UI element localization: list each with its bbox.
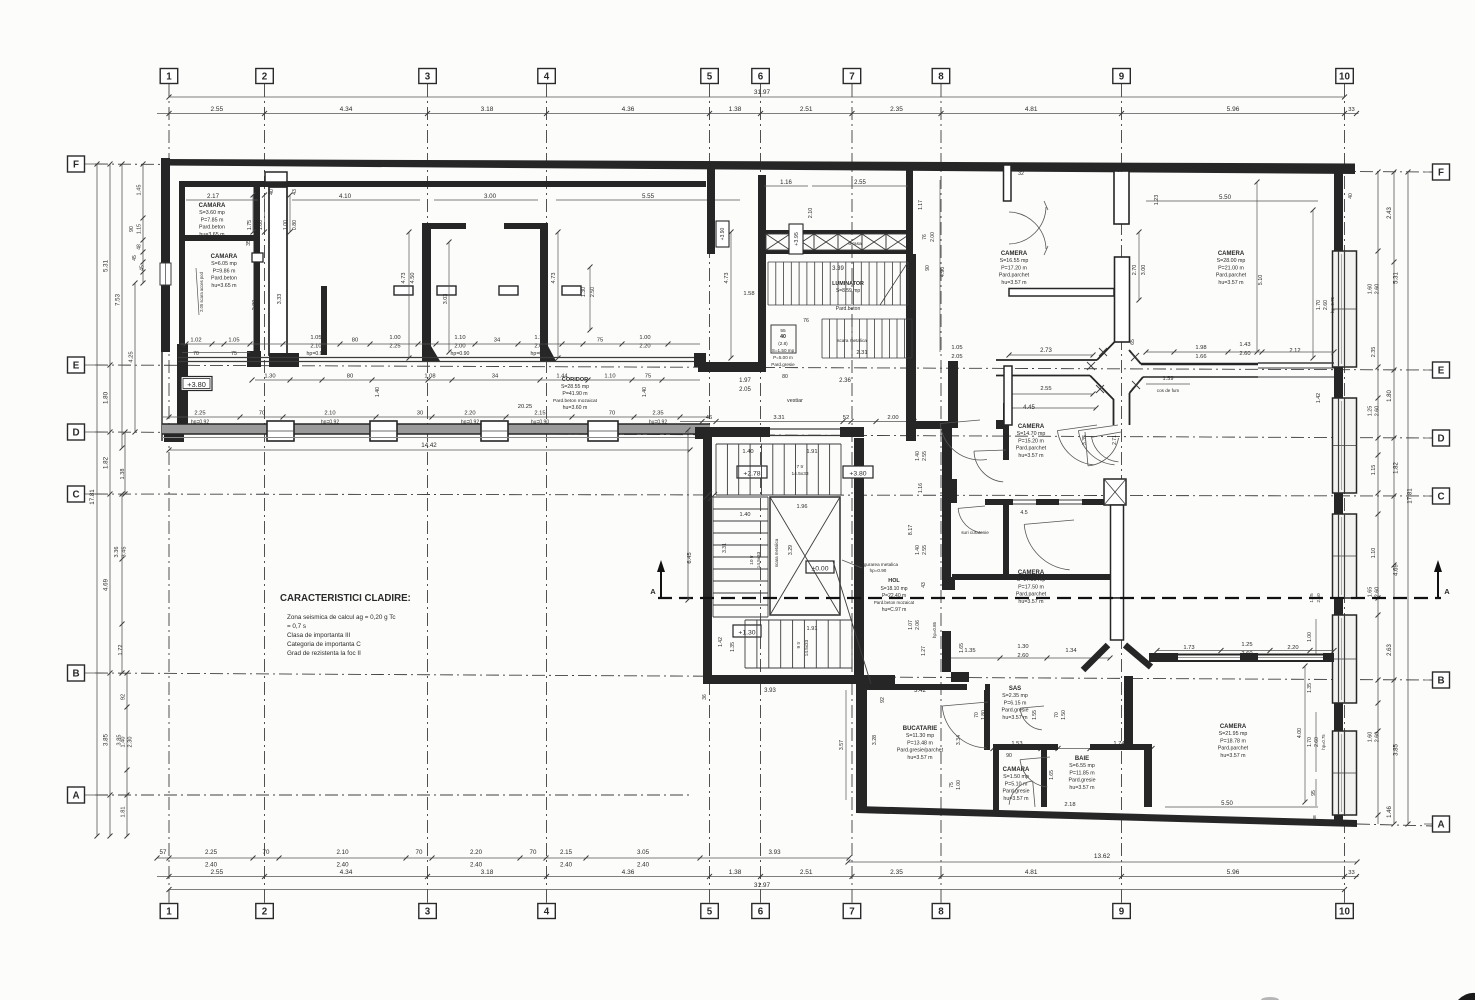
svg-text:70: 70 [609, 411, 615, 417]
svg-text:2.25: 2.25 [205, 849, 218, 856]
svg-text:S=11.30 mp: S=11.30 mp [906, 733, 934, 739]
svg-text:4.34: 4.34 [340, 106, 353, 113]
svg-text:4: 4 [544, 906, 550, 917]
svg-text:1.96: 1.96 [797, 504, 808, 510]
svg-text:A: A [650, 587, 656, 596]
svg-text:2.36: 2.36 [839, 378, 851, 384]
svg-text:70: 70 [974, 712, 980, 718]
svg-text:30: 30 [417, 411, 423, 417]
svg-text:CAMERA: CAMERA [1001, 251, 1028, 257]
svg-text:4.34: 4.34 [340, 869, 353, 876]
svg-text:1.35: 1.35 [730, 642, 736, 652]
svg-text:1.10: 1.10 [604, 374, 615, 380]
svg-text:1.91: 1.91 [807, 626, 818, 632]
svg-text:17.81: 17.81 [1407, 488, 1414, 504]
svg-text:4.36: 4.36 [622, 106, 635, 113]
svg-text:36: 36 [1117, 168, 1123, 174]
svg-text:2.40: 2.40 [336, 862, 349, 869]
svg-text:4.81: 4.81 [1025, 869, 1038, 876]
svg-text:10: 10 [1339, 71, 1350, 82]
svg-text:Pard.beton: Pard.beton [836, 306, 861, 312]
svg-text:hu=3.57 m: hu=3.57 m [907, 755, 933, 761]
svg-text:4.5: 4.5 [1020, 510, 1027, 516]
svg-text:2.60: 2.60 [1017, 653, 1028, 659]
svg-text:1: 1 [166, 71, 172, 82]
svg-text:S=16.55 mp: S=16.55 mp [1000, 258, 1029, 264]
svg-text:3.33: 3.33 [277, 294, 283, 305]
svg-text:hu=3.57 m: hu=3.57 m [1018, 453, 1044, 459]
svg-text:2.80: 2.80 [252, 300, 258, 311]
svg-text:P=5.10 m: P=5.10 m [1005, 781, 1028, 787]
svg-text:CAMERA: CAMERA [1018, 570, 1045, 576]
svg-text:3: 3 [425, 71, 431, 82]
svg-text:1.50: 1.50 [1061, 710, 1067, 720]
svg-text:9 tr: 9 tr [796, 641, 802, 648]
svg-text:1.59: 1.59 [1163, 376, 1174, 382]
svg-text:2.05: 2.05 [739, 387, 751, 393]
svg-text:BUCATARIE: BUCATARIE [903, 726, 937, 732]
svg-text:1.07: 1.07 [908, 620, 914, 630]
svg-text:8: 8 [938, 906, 944, 917]
svg-text:3.45: 3.45 [122, 547, 128, 558]
svg-text:C: C [72, 489, 79, 500]
svg-text:2.55: 2.55 [854, 180, 866, 186]
svg-text:48: 48 [137, 244, 143, 250]
svg-text:terasa: terasa [848, 241, 862, 247]
svg-text:3.93: 3.93 [764, 688, 776, 694]
svg-text:3.31: 3.31 [722, 543, 728, 553]
svg-text:2.63: 2.63 [1387, 644, 1393, 656]
svg-text:Pard.parchet: Pard.parchet [1218, 746, 1249, 752]
svg-text:2.00: 2.00 [454, 344, 465, 350]
svg-text:2.35: 2.35 [890, 869, 903, 876]
svg-text:3.00: 3.00 [1141, 265, 1147, 276]
svg-text:vestiar: vestiar [787, 398, 803, 404]
svg-text:33: 33 [1348, 870, 1354, 876]
svg-text:1.25: 1.25 [1368, 406, 1374, 417]
svg-text:CARACTERISTICI CLADIRE:: CARACTERISTICI CLADIRE: [280, 593, 411, 604]
svg-text:1.40: 1.40 [915, 451, 921, 461]
svg-text:= 0,7 s: = 0,7 s [287, 623, 306, 630]
svg-text:4.90: 4.90 [940, 267, 946, 278]
svg-text:10: 10 [1339, 906, 1350, 917]
svg-text:2.00: 2.00 [534, 344, 545, 350]
svg-text:B: B [1437, 675, 1444, 686]
svg-text:6: 6 [758, 906, 764, 917]
svg-text:40: 40 [269, 189, 275, 195]
svg-text:5.55: 5.55 [642, 193, 655, 200]
svg-text:80: 80 [782, 374, 788, 380]
svg-text:43: 43 [921, 582, 927, 588]
svg-text:BAIE: BAIE [1075, 756, 1089, 762]
svg-text:1.40: 1.40 [740, 512, 751, 518]
svg-text:1.70: 1.70 [1316, 300, 1322, 310]
svg-text:P=15.20 m: P=15.20 m [1018, 438, 1044, 444]
svg-text:3.18: 3.18 [481, 869, 494, 876]
svg-text:2.31: 2.31 [856, 350, 867, 356]
svg-text:hu=3.57 m: hu=3.57 m [1003, 796, 1029, 802]
svg-text:S=6.55 mp: S=6.55 mp [1069, 763, 1095, 769]
svg-text:CAMARA: CAMARA [211, 254, 238, 260]
svg-text:Pard.gresie: Pard.gresie [1068, 778, 1095, 784]
svg-text:1.74: 1.74 [1113, 741, 1125, 747]
svg-text:2.20: 2.20 [464, 411, 475, 417]
svg-text:P=21.00 m: P=21.00 m [1218, 265, 1244, 271]
svg-text:3.18: 3.18 [481, 106, 494, 113]
svg-text:4.45: 4.45 [1023, 405, 1035, 411]
svg-text:1.73: 1.73 [1183, 645, 1194, 651]
svg-text:1.16: 1.16 [918, 483, 924, 493]
svg-text:hu=3.57 m: hu=3.57 m [1220, 753, 1246, 759]
svg-text:1.80: 1.80 [103, 391, 110, 404]
svg-text:70: 70 [263, 849, 270, 856]
svg-text:14.5x33: 14.5x33 [791, 471, 808, 477]
svg-text:Pard.parchet: Pard.parchet [1216, 273, 1247, 279]
svg-text:14.42: 14.42 [421, 442, 437, 449]
svg-text:2.17: 2.17 [207, 193, 220, 200]
svg-text:20.25: 20.25 [518, 404, 533, 410]
svg-text:3.00: 3.00 [484, 193, 497, 200]
svg-text:1.44: 1.44 [556, 374, 568, 380]
svg-text:1.65: 1.65 [959, 643, 965, 653]
svg-text:3.85: 3.85 [103, 733, 110, 746]
svg-text:70: 70 [1054, 712, 1060, 718]
svg-text:92: 92 [121, 694, 127, 700]
svg-text:2.60: 2.60 [1375, 284, 1381, 295]
svg-text:1.97: 1.97 [739, 378, 751, 384]
svg-text:2.20: 2.20 [639, 344, 650, 350]
svg-text:2.40: 2.40 [560, 862, 573, 869]
svg-text:2.05: 2.05 [951, 354, 962, 360]
svg-text:Pard.beton mozaicat: Pard.beton mozaicat [874, 600, 915, 605]
svg-text:S=17.50 mp: S=17.50 mp [1017, 577, 1046, 583]
svg-text:hp=0.92: hp=0.92 [461, 420, 479, 426]
svg-text:P=9.86 m: P=9.86 m [213, 268, 236, 274]
svg-text:hp=0.92: hp=0.92 [191, 420, 209, 426]
svg-text:70: 70 [416, 849, 423, 856]
svg-text:Zona seismica de calcul ag =: Zona seismica de calcul ag = 0,20 g Tc [287, 614, 396, 621]
svg-text:SAS: SAS [1009, 686, 1021, 692]
svg-text:1.00: 1.00 [1307, 632, 1313, 642]
svg-text:S=6.05 mp: S=6.05 mp [211, 261, 237, 267]
svg-text:hu=3.57 m: hu=3.57 m [1069, 785, 1095, 791]
svg-text:3.36: 3.36 [114, 547, 120, 558]
svg-text:hp=0.85: hp=0.85 [932, 621, 937, 638]
svg-text:75: 75 [597, 338, 603, 344]
svg-text:1.34: 1.34 [1065, 648, 1077, 654]
svg-text:A: A [1437, 819, 1444, 830]
svg-text:1.10: 1.10 [454, 335, 465, 341]
svg-text:CAMERA: CAMERA [1220, 724, 1247, 730]
svg-text:HOL: HOL [888, 578, 900, 584]
svg-text:S=1.50 mp: S=1.50 mp [1003, 774, 1029, 780]
svg-text:1.05: 1.05 [310, 335, 321, 341]
svg-text:2.06: 2.06 [915, 620, 921, 630]
svg-text:1.02: 1.02 [190, 338, 201, 344]
svg-text:1.70: 1.70 [1307, 737, 1313, 747]
svg-text:1.75: 1.75 [247, 220, 253, 230]
svg-text:2.60: 2.60 [1375, 406, 1381, 417]
svg-text:2.40: 2.40 [470, 862, 483, 869]
svg-text:+3.95: +3.95 [794, 232, 800, 246]
svg-text:2.10: 2.10 [310, 344, 321, 350]
svg-text:2.20: 2.20 [470, 849, 483, 856]
svg-text:38: 38 [1312, 815, 1318, 821]
svg-text:1.35: 1.35 [964, 648, 975, 654]
svg-text:hu=3.65 m: hu=3.65 m [211, 283, 237, 289]
svg-text:2.35: 2.35 [890, 106, 903, 113]
svg-text:8.17: 8.17 [908, 525, 914, 536]
svg-text:S=2.35 mp: S=2.35 mp [1002, 693, 1028, 699]
svg-text:34: 34 [492, 374, 499, 380]
svg-text:4.81: 4.81 [1025, 106, 1038, 113]
svg-text:S=1.50 mp: S=1.50 mp [772, 348, 795, 353]
svg-text:1.40: 1.40 [742, 449, 753, 455]
svg-text:90: 90 [129, 226, 135, 232]
svg-text:3.31: 3.31 [773, 415, 784, 421]
svg-text:1.38: 1.38 [729, 106, 742, 113]
svg-text:1.00: 1.00 [283, 220, 289, 230]
svg-text:40: 40 [780, 334, 786, 340]
svg-text:7: 7 [849, 71, 855, 82]
svg-text:46: 46 [706, 415, 712, 421]
svg-text:2.30: 2.30 [128, 737, 134, 748]
svg-text:1.55: 1.55 [1032, 710, 1038, 720]
svg-text:7: 7 [849, 906, 855, 917]
svg-text:4.73: 4.73 [724, 273, 730, 284]
svg-text:1.60: 1.60 [1368, 732, 1374, 743]
svg-text:1.45: 1.45 [137, 185, 143, 196]
svg-text:75: 75 [949, 782, 955, 788]
svg-text:1.15: 1.15 [137, 224, 143, 234]
svg-text:1.05: 1.05 [951, 345, 962, 351]
svg-text:2.10: 2.10 [324, 411, 335, 417]
svg-text:92: 92 [880, 697, 886, 703]
svg-text:S=3.60 mp: S=3.60 mp [199, 210, 225, 216]
svg-text:14.5x33: 14.5x33 [804, 639, 809, 656]
svg-text:hp=0.90: hp=0.90 [307, 351, 326, 357]
svg-text:2.55: 2.55 [1040, 386, 1051, 392]
svg-text:1.25: 1.25 [1241, 642, 1252, 648]
svg-text:35: 35 [246, 240, 252, 246]
svg-text:CAMERA: CAMERA [1018, 424, 1045, 430]
svg-text:2.25: 2.25 [194, 411, 205, 417]
svg-text:1.40: 1.40 [121, 737, 127, 748]
svg-text:S=14.70 mp: S=14.70 mp [1017, 431, 1046, 437]
svg-text:6.45: 6.45 [687, 552, 693, 563]
svg-text:4: 4 [544, 71, 550, 82]
svg-text:D: D [1437, 433, 1444, 444]
svg-text:70: 70 [193, 351, 199, 357]
svg-text:2.40: 2.40 [205, 862, 218, 869]
svg-text:2.51: 2.51 [800, 869, 813, 876]
svg-text:P=6.15 m: P=6.15 m [1004, 700, 1027, 706]
svg-text:Pard.beton: Pard.beton [199, 225, 225, 231]
svg-text:2.10: 2.10 [808, 208, 814, 219]
svg-text:2.73: 2.73 [1040, 348, 1052, 354]
svg-text:2.60: 2.60 [1375, 732, 1381, 743]
svg-text:C: C [1437, 491, 1444, 502]
svg-text:P=11.85 m: P=11.85 m [1069, 770, 1095, 776]
svg-text:43: 43 [292, 189, 298, 195]
svg-text:1.15: 1.15 [1371, 465, 1377, 476]
svg-text:1.10: 1.10 [534, 335, 545, 341]
svg-text:5.50: 5.50 [1219, 194, 1232, 201]
svg-text:S=28.00 mp: S=28.00 mp [1217, 258, 1246, 264]
svg-text:17.81: 17.81 [89, 489, 96, 505]
svg-text:suri curatenie: suri curatenie [961, 530, 989, 535]
svg-text:1.80: 1.80 [981, 710, 987, 720]
svg-text:3.05: 3.05 [637, 849, 650, 856]
svg-text:3.39: 3.39 [832, 266, 844, 272]
svg-text:F: F [73, 159, 79, 170]
svg-text:2.60: 2.60 [1375, 587, 1381, 598]
svg-text:1.42: 1.42 [1316, 393, 1322, 403]
svg-text:0.80: 0.80 [292, 220, 298, 230]
svg-text:Pard.beton: Pard.beton [211, 276, 237, 282]
svg-text:1.82: 1.82 [1394, 462, 1400, 474]
svg-text:1.81: 1.81 [121, 807, 127, 818]
svg-text:3.29: 3.29 [788, 545, 794, 555]
svg-text:6: 6 [758, 71, 764, 82]
svg-text:cos de fum: cos de fum [1157, 388, 1180, 393]
svg-text:1.60: 1.60 [1368, 284, 1374, 295]
svg-text:5.96: 5.96 [1227, 869, 1240, 876]
svg-text:hu=C.97 m: hu=C.97 m [882, 607, 907, 613]
svg-text:1.05: 1.05 [228, 338, 239, 344]
svg-text:A: A [1444, 587, 1450, 596]
svg-text:Pard.beton mozaicat: Pard.beton mozaicat [553, 398, 598, 404]
svg-text:90: 90 [925, 265, 931, 271]
svg-text:LUMINATOR: LUMINATOR [832, 281, 864, 287]
svg-text:1.91: 1.91 [806, 449, 817, 455]
svg-text:1.27: 1.27 [921, 646, 927, 656]
svg-text:1.00: 1.00 [639, 335, 650, 341]
svg-text:40: 40 [1348, 193, 1354, 199]
svg-text:2.40: 2.40 [637, 862, 650, 869]
svg-text:1.30: 1.30 [264, 374, 275, 380]
svg-text:CAMARA: CAMARA [199, 203, 226, 209]
svg-text:P=17.20 m: P=17.20 m [1001, 265, 1027, 271]
svg-text:S=21.95 mp: S=21.95 mp [1219, 731, 1248, 737]
svg-text:3.57: 3.57 [839, 740, 845, 750]
svg-text:1.65: 1.65 [1368, 587, 1374, 598]
svg-text:2.35: 2.35 [652, 411, 663, 417]
svg-text:1.72: 1.72 [118, 645, 124, 656]
svg-text:1.16: 1.16 [780, 180, 792, 186]
svg-text:(2.8): (2.8) [778, 341, 788, 346]
svg-text:95: 95 [1311, 790, 1317, 796]
svg-text:70: 70 [259, 411, 265, 417]
svg-text:31.97: 31.97 [754, 882, 771, 889]
svg-text:2.10: 2.10 [336, 849, 349, 856]
svg-text:2.05 scara acces pod: 2.05 scara acces pod [199, 271, 204, 311]
svg-text:1.35: 1.35 [1307, 683, 1313, 693]
svg-text:hu=3.65 m: hu=3.65 m [199, 232, 225, 238]
svg-text:2: 2 [262, 906, 268, 917]
svg-text:2.15: 2.15 [534, 411, 545, 417]
svg-text:2.00: 2.00 [930, 232, 936, 242]
svg-text:2.60: 2.60 [1323, 300, 1329, 310]
svg-text:2.70: 2.70 [1132, 265, 1138, 276]
svg-text:1.58: 1.58 [743, 291, 754, 297]
svg-text:hp=0.92: hp=0.92 [321, 420, 339, 426]
svg-text:1.65: 1.65 [1049, 770, 1055, 780]
svg-text:3.85: 3.85 [1394, 744, 1400, 756]
svg-text:P=17.50 m: P=17.50 m [1018, 584, 1044, 590]
svg-text:13.62: 13.62 [1094, 853, 1111, 860]
svg-text:76: 76 [803, 318, 809, 324]
svg-text:4.69: 4.69 [103, 578, 110, 591]
svg-text:2.00: 2.00 [887, 415, 898, 421]
svg-text:hu=3.57 m: hu=3.57 m [1218, 280, 1244, 286]
svg-text:1.53: 1.53 [1011, 741, 1022, 747]
svg-text:1.40: 1.40 [375, 387, 381, 397]
svg-text:3.03: 3.03 [443, 294, 449, 305]
svg-text:1.10: 1.10 [1371, 548, 1377, 559]
svg-text:36: 36 [702, 694, 708, 700]
svg-text:2: 2 [262, 71, 268, 82]
svg-text:1: 1 [166, 906, 172, 917]
svg-text:1.42: 1.42 [718, 637, 724, 647]
svg-text:45: 45 [132, 255, 138, 261]
svg-text:CAMARA: CAMARA [1003, 767, 1030, 773]
svg-text:2.55: 2.55 [210, 869, 223, 876]
svg-text:hu=3.60 m: hu=3.60 m [563, 405, 588, 411]
svg-text:5.31: 5.31 [103, 259, 110, 272]
svg-text:P=13.48 m: P=13.48 m [907, 740, 933, 746]
svg-text:2.55: 2.55 [922, 545, 928, 555]
svg-text:4.73: 4.73 [551, 273, 557, 284]
svg-text:1.17: 1.17 [918, 200, 924, 210]
svg-text:4.00: 4.00 [1297, 728, 1303, 738]
svg-text:scara metalica: scara metalica [837, 338, 867, 343]
svg-text:hp=0.75: hp=0.75 [1321, 734, 1326, 750]
svg-text:S=8.59 mp: S=8.59 mp [836, 288, 861, 294]
svg-text:E: E [1438, 365, 1445, 376]
svg-text:Grad de rezistenta la foc II: Grad de rezistenta la foc II [287, 650, 361, 657]
svg-text:2.20: 2.20 [1287, 645, 1298, 651]
svg-text:+1.30: +1.30 [738, 630, 755, 637]
svg-text:Pard.parchet: Pard.parchet [1016, 592, 1047, 598]
svg-text:3.93: 3.93 [768, 849, 781, 856]
svg-text:+3.90: +3.90 [720, 227, 726, 240]
svg-text:8: 8 [938, 71, 944, 82]
svg-text:2.15: 2.15 [560, 849, 573, 856]
svg-text:4.36: 4.36 [622, 869, 635, 876]
svg-text:3.28: 3.28 [872, 735, 878, 745]
svg-text:31.97: 31.97 [754, 89, 771, 96]
svg-text:Pard.gresie/parchet: Pard.gresie/parchet [897, 748, 944, 754]
svg-text:2.43: 2.43 [1387, 207, 1393, 219]
svg-text:Clasa de importanta III: Clasa de importanta III [287, 632, 351, 639]
svg-text:Pard.gresie: Pard.gresie [1001, 708, 1028, 714]
svg-text:1.00: 1.00 [258, 220, 264, 230]
svg-text:+3.80: +3.80 [187, 380, 206, 389]
svg-text:7.53: 7.53 [115, 293, 122, 306]
svg-text:2.55: 2.55 [922, 451, 928, 461]
svg-text:70: 70 [530, 849, 537, 856]
svg-text:1.40: 1.40 [915, 545, 921, 555]
svg-text:2.51: 2.51 [800, 106, 813, 113]
svg-text:Categoria de importanta C: Categoria de importanta C [287, 641, 361, 648]
svg-text:90: 90 [1006, 753, 1012, 759]
svg-text:80: 80 [347, 374, 353, 380]
svg-text:D: D [72, 427, 79, 438]
svg-text:75: 75 [645, 374, 651, 380]
svg-text:33: 33 [1348, 107, 1354, 113]
svg-text:3: 3 [425, 906, 431, 917]
